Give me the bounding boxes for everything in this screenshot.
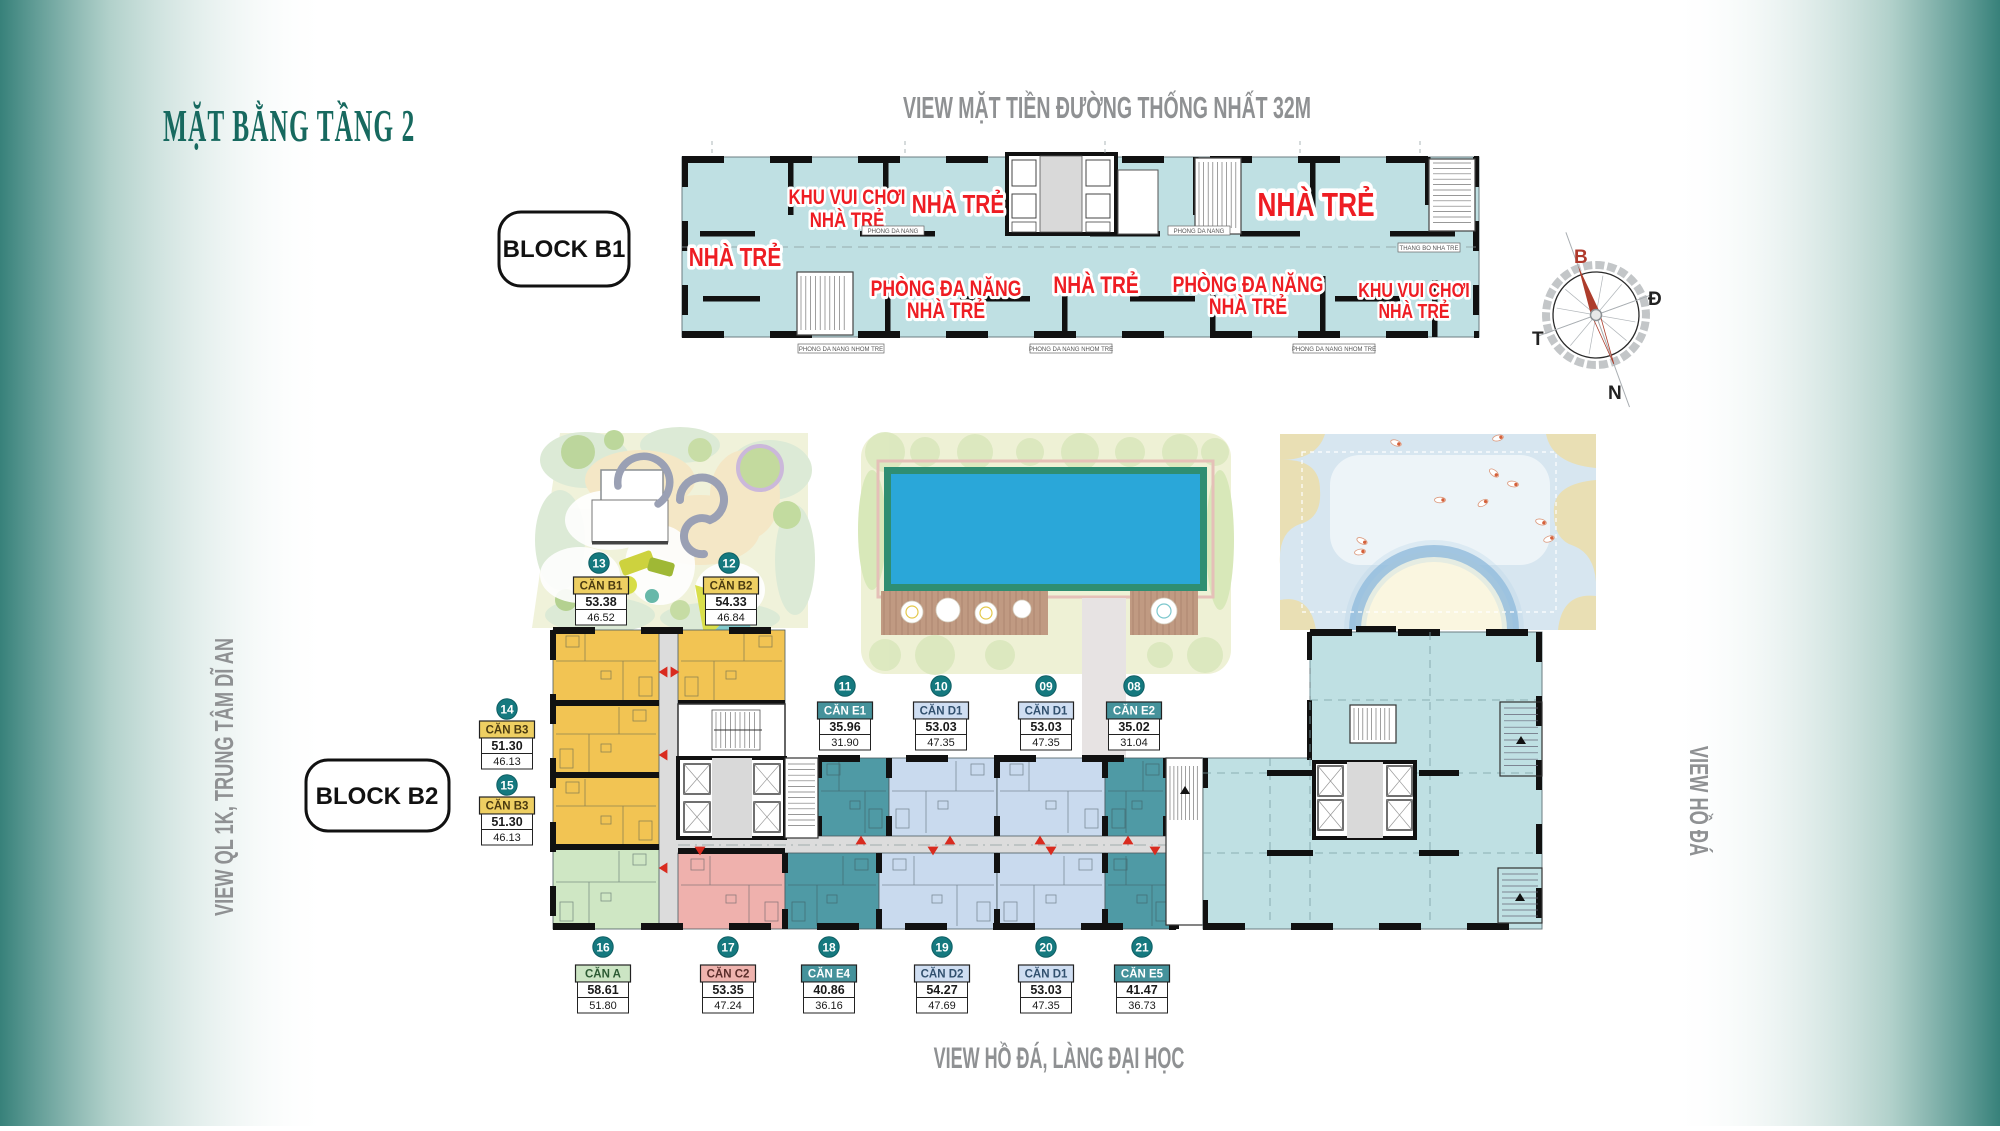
svg-text:CĂN E5: CĂN E5: [1121, 968, 1164, 981]
svg-text:NHÀ TRẺ: NHÀ TRẺ: [689, 241, 781, 272]
svg-text:53.38: 53.38: [585, 595, 616, 609]
svg-text:NHÀ TRẺ: NHÀ TRẺ: [907, 298, 985, 323]
svg-text:VIEW MẶT TIỀN ĐƯỜNG THỐNG NHẤT: VIEW MẶT TIỀN ĐƯỜNG THỐNG NHẤT 32M: [903, 89, 1311, 125]
svg-text:NHÀ TRẺ: NHÀ TRẺ: [1209, 294, 1287, 319]
svg-text:53.03: 53.03: [1030, 720, 1061, 734]
svg-text:47.24: 47.24: [714, 1000, 742, 1012]
svg-text:VIEW HỒ ĐÁ: VIEW HỒ ĐÁ: [1684, 746, 1713, 856]
svg-text:54.27: 54.27: [926, 983, 957, 997]
svg-text:13: 13: [592, 557, 606, 571]
svg-text:46.52: 46.52: [587, 612, 615, 624]
svg-text:47.69: 47.69: [928, 1000, 956, 1012]
svg-text:21: 21: [1135, 941, 1149, 955]
svg-text:51.30: 51.30: [491, 815, 522, 829]
svg-text:CĂN B1: CĂN B1: [580, 580, 623, 593]
svg-text:16: 16: [596, 941, 610, 955]
svg-text:15: 15: [500, 779, 514, 793]
svg-text:CĂN A: CĂN A: [585, 968, 621, 981]
svg-text:N: N: [1608, 383, 1622, 404]
svg-text:46.13: 46.13: [493, 832, 521, 844]
svg-text:11: 11: [839, 680, 852, 694]
svg-text:CĂN D1: CĂN D1: [920, 705, 963, 718]
svg-text:19: 19: [935, 941, 949, 955]
svg-text:NHÀ TRẺ: NHÀ TRẺ: [912, 188, 1004, 219]
svg-text:NHÀ TRẺ: NHÀ TRẺ: [1257, 186, 1374, 224]
svg-text:NHÀ TRẺ: NHÀ TRẺ: [1053, 271, 1138, 299]
svg-text:12: 12: [722, 557, 736, 571]
svg-text:PHONG DA NANG: PHONG DA NANG: [1174, 229, 1225, 235]
svg-text:PHÒNG ĐA NĂNG: PHÒNG ĐA NĂNG: [1173, 271, 1324, 298]
svg-text:18: 18: [822, 941, 836, 955]
svg-text:T: T: [1532, 329, 1544, 350]
svg-text:NHÀ TRẺ: NHÀ TRẺ: [1378, 299, 1449, 322]
svg-text:51.80: 51.80: [589, 1000, 617, 1012]
svg-text:47.35: 47.35: [1032, 1000, 1060, 1012]
svg-text:10: 10: [934, 680, 948, 694]
svg-text:THANG BO NHA TRE: THANG BO NHA TRE: [1400, 246, 1459, 252]
svg-text:PHONG DA NANG NHOM TRE: PHONG DA NANG NHOM TRE: [1029, 347, 1113, 353]
svg-text:51.30: 51.30: [491, 739, 522, 753]
svg-text:PHONG DA NANG NHOM TRE: PHONG DA NANG NHOM TRE: [1292, 347, 1376, 353]
svg-text:CĂN E2: CĂN E2: [1113, 705, 1155, 718]
svg-text:CĂN C2: CĂN C2: [707, 968, 750, 981]
svg-text:BLOCK B1: BLOCK B1: [503, 236, 626, 263]
svg-text:40.86: 40.86: [813, 983, 844, 997]
svg-text:PHÒNG ĐA NĂNG: PHÒNG ĐA NĂNG: [871, 275, 1022, 302]
svg-text:47.35: 47.35: [927, 737, 955, 749]
svg-text:MẶT BẰNG TẦNG 2: MẶT BẰNG TẦNG 2: [163, 99, 415, 152]
svg-text:35.96: 35.96: [829, 720, 860, 734]
svg-text:CĂN D1: CĂN D1: [1025, 968, 1068, 981]
svg-text:VIEW QL 1K, TRUNG TÂM DĨ AN: VIEW QL 1K, TRUNG TÂM DĨ AN: [210, 638, 239, 916]
svg-text:36.16: 36.16: [815, 1000, 843, 1012]
svg-text:08: 08: [1127, 680, 1141, 694]
svg-text:CĂN B3: CĂN B3: [486, 800, 529, 813]
svg-text:VIEW HỒ ĐÁ, LÀNG ĐẠI HỌC: VIEW HỒ ĐÁ, LÀNG ĐẠI HỌC: [934, 1041, 1185, 1075]
svg-text:B: B: [1574, 247, 1588, 268]
svg-text:35.02: 35.02: [1118, 720, 1149, 734]
svg-text:53.03: 53.03: [925, 720, 956, 734]
svg-text:47.35: 47.35: [1032, 737, 1060, 749]
svg-text:53.35: 53.35: [712, 983, 743, 997]
svg-text:KHU VUI CHƠI: KHU VUI CHƠI: [1358, 279, 1469, 301]
svg-text:09: 09: [1039, 680, 1053, 694]
svg-text:31.04: 31.04: [1120, 737, 1148, 749]
svg-text:Đ: Đ: [1648, 289, 1662, 310]
svg-text:PHONG DA NANG: PHONG DA NANG: [868, 229, 919, 235]
svg-text:CĂN D1: CĂN D1: [1025, 705, 1068, 718]
svg-text:CĂN B2: CĂN B2: [710, 580, 753, 593]
svg-text:14: 14: [500, 703, 514, 717]
svg-text:36.73: 36.73: [1128, 1000, 1156, 1012]
svg-text:41.47: 41.47: [1126, 983, 1157, 997]
svg-text:PHONG DA NANG NHOM TRE: PHONG DA NANG NHOM TRE: [799, 347, 883, 353]
svg-text:31.90: 31.90: [831, 737, 859, 749]
svg-text:CĂN E1: CĂN E1: [824, 705, 867, 718]
svg-text:20: 20: [1039, 941, 1053, 955]
svg-text:CĂN E4: CĂN E4: [808, 968, 851, 981]
svg-text:CĂN B3: CĂN B3: [486, 724, 529, 737]
svg-text:CĂN D2: CĂN D2: [921, 968, 964, 981]
svg-text:54.33: 54.33: [715, 595, 746, 609]
svg-text:46.13: 46.13: [493, 756, 521, 768]
svg-text:53.03: 53.03: [1030, 983, 1061, 997]
svg-text:KHU VUI CHƠI: KHU VUI CHƠI: [789, 186, 906, 209]
svg-text:BLOCK B2: BLOCK B2: [316, 783, 439, 810]
svg-text:58.61: 58.61: [587, 983, 618, 997]
svg-text:46.84: 46.84: [717, 612, 745, 624]
svg-text:17: 17: [721, 941, 735, 955]
